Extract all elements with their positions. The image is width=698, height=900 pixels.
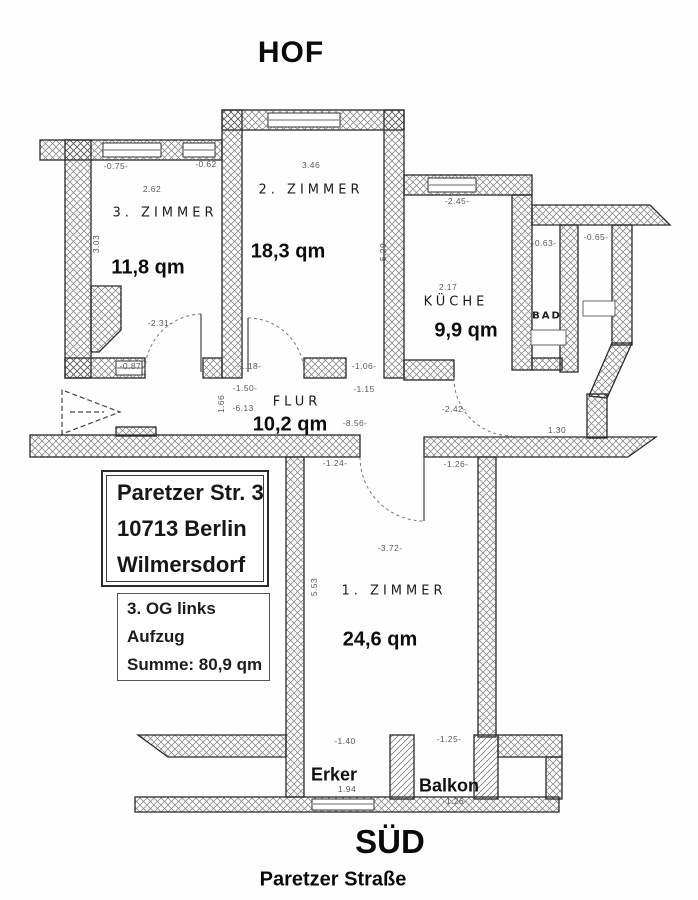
room-area-label: 24,6 qm (343, 629, 417, 652)
room-name-label: 1. ZIMMER (342, 584, 447, 599)
dimension-label: 2.17 (439, 282, 457, 292)
dimension-label: -6.13 (232, 403, 253, 413)
dimension-label: 1.94 (338, 784, 356, 794)
room-area-label: 10,2 qm (253, 414, 327, 437)
dimension-label: -1.40 (334, 736, 355, 746)
info-box: 3. OG links Aufzug Summe: 80,9 qm (117, 593, 270, 681)
dimension-label: 2.62 (143, 184, 161, 194)
dimension-label: -2.31- (148, 318, 173, 328)
room-name-label: FLUR (273, 395, 322, 410)
room-name-label: BAD (532, 311, 562, 322)
dimension-label: -1.15 (353, 384, 374, 394)
dimension-label: -0.63- (532, 238, 557, 248)
dimension-label: -3.72- (378, 543, 403, 553)
info-line: Aufzug (127, 623, 269, 651)
dimension-label: -1.26- (443, 796, 468, 806)
room-area-label: 18,3 qm (251, 241, 325, 264)
dimension-label: 1.30 (548, 425, 566, 435)
info-line: Summe: 80,9 qm (127, 651, 269, 679)
address-box: Paretzer Str. 3 10713 Berlin Wilmersdorf (101, 470, 269, 587)
dimension-label: -1.50- (233, 383, 258, 393)
street-name: Paretzer Straße (260, 869, 407, 892)
dimension-label: -1.06- (352, 361, 377, 371)
title-hof: HOF (258, 36, 324, 70)
dimension-label: -0.62 (195, 159, 216, 169)
room-name-label: KÜCHE (424, 295, 489, 310)
dimension-label: -2.42- (442, 404, 467, 414)
dimension-label: -0.75- (104, 161, 129, 171)
address-line: 10713 Berlin (117, 511, 267, 547)
dimension-label: -0.87- (120, 361, 145, 371)
dimension-label: 3.46 (302, 160, 320, 170)
dimension-label: -1.25- (437, 734, 462, 744)
info-line: 3. OG links (127, 595, 269, 623)
dimension-label: -1.26- (444, 459, 469, 469)
dimension-label: -1.24- (323, 458, 348, 468)
dimension-label: -8.56- (343, 418, 368, 428)
room-name-label: 3. ZIMMER (113, 206, 218, 221)
dimension-label: -2.45- (445, 196, 470, 206)
dimension-label: 5.29 (378, 243, 388, 261)
dimension-label: 5.53 (309, 578, 319, 596)
dimension-label: 3.03 (91, 235, 101, 253)
floorplan-page: HOF SÜD Paretzer Straße Paretzer Str. 3 … (0, 0, 698, 900)
room-area-label: 9,9 qm (434, 320, 497, 343)
address-line: Wilmersdorf (117, 547, 267, 583)
dimension-label: -0.65- (584, 232, 609, 242)
room-name-label: Balkon (419, 776, 479, 797)
room-name-label: Erker (311, 765, 357, 786)
title-sued: SÜD (355, 823, 425, 861)
dimension-label: 1.66 (216, 395, 226, 413)
room-name-label: 2. ZIMMER (259, 183, 364, 198)
room-area-label: 11,8 qm (111, 257, 184, 280)
address-line: Paretzer Str. 3 (117, 475, 267, 511)
dimension-label: -1.18- (237, 361, 262, 371)
entrance-arrow-icon (62, 390, 120, 434)
